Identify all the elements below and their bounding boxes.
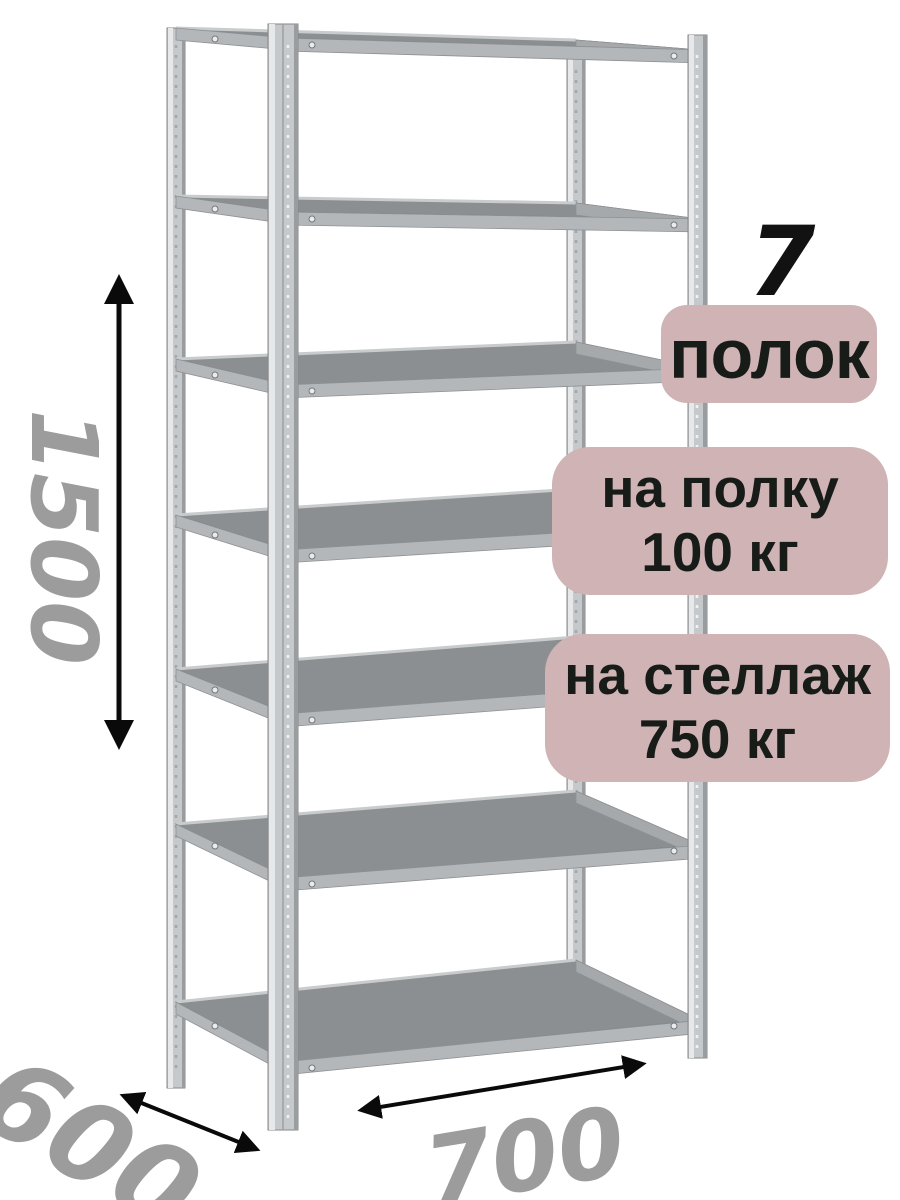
shelf-1 [176, 28, 703, 63]
width-arrow [362, 1064, 642, 1110]
per-rack-load-badge: на стеллаж 750 кг [545, 634, 890, 782]
shelving-rack-illustration [0, 0, 900, 1200]
shelf-2 [176, 196, 703, 232]
per-shelf-load-value: 100 кг [641, 521, 798, 585]
shelf-count-number: 7 [697, 212, 867, 312]
shelf-count-badge: полок [661, 305, 877, 403]
front-left-post [268, 24, 298, 1130]
back-left-post [167, 28, 185, 1088]
depth-arrow [124, 1096, 256, 1149]
shelf-7 [176, 960, 703, 1075]
per-rack-load-caption: на стеллаж [564, 644, 871, 708]
shelf-6 [176, 791, 703, 891]
per-shelf-load-caption: на полку [601, 457, 839, 521]
product-image: 1500 600 700 7 полок на полку 100 кг на … [0, 0, 900, 1200]
shelf-3 [176, 342, 703, 398]
shelf-count-caption: полок [669, 314, 869, 394]
per-shelf-load-badge: на полку 100 кг [552, 447, 888, 595]
per-rack-load-value: 750 кг [639, 708, 796, 772]
